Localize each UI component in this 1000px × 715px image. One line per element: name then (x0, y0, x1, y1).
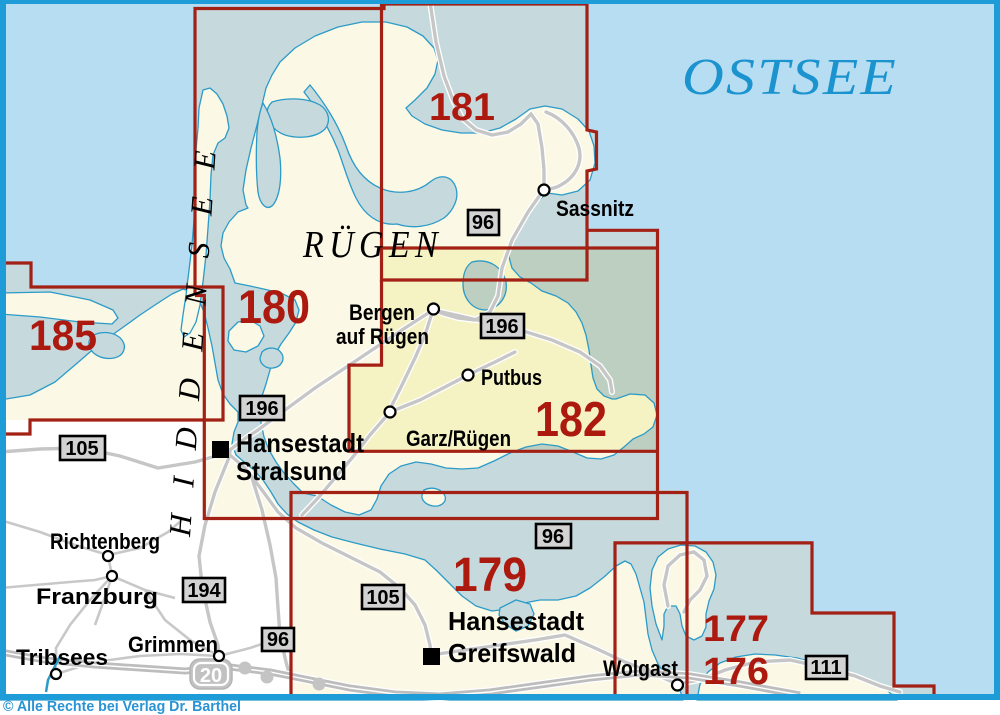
svg-text:Garz/Rügen: Garz/Rügen (406, 426, 511, 451)
svg-text:Grimmen: Grimmen (128, 632, 218, 657)
svg-text:105: 105 (65, 438, 98, 460)
svg-text:194: 194 (187, 580, 221, 602)
svg-text:196: 196 (245, 398, 278, 420)
svg-text:185: 185 (29, 312, 97, 360)
svg-text:© Alle Rechte bei Verlag Dr. B: © Alle Rechte bei Verlag Dr. Barthel (3, 699, 241, 715)
svg-text:96: 96 (542, 526, 564, 548)
svg-text:Putbus: Putbus (481, 365, 542, 390)
svg-text:Sassnitz: Sassnitz (556, 196, 634, 221)
svg-text:96: 96 (267, 629, 289, 651)
svg-text:Stralsund: Stralsund (236, 456, 347, 486)
svg-text:181: 181 (429, 86, 495, 129)
svg-text:182: 182 (535, 393, 607, 447)
svg-text:Bergen: Bergen (349, 300, 415, 325)
svg-text:180: 180 (238, 280, 310, 333)
svg-text:Richtenberg: Richtenberg (50, 529, 160, 554)
svg-text:Hansestadt: Hansestadt (236, 428, 364, 458)
svg-text:Wolgast: Wolgast (603, 656, 679, 681)
svg-text:Hansestadt: Hansestadt (448, 606, 584, 636)
svg-text:179: 179 (453, 549, 527, 602)
svg-text:auf Rügen: auf Rügen (336, 324, 429, 349)
svg-text:105: 105 (366, 587, 399, 609)
svg-text:196: 196 (485, 316, 518, 338)
svg-text:111: 111 (810, 657, 841, 679)
svg-text:96: 96 (472, 212, 494, 234)
svg-text:OSTSEE: OSTSEE (682, 49, 898, 106)
svg-text:RÜGEN: RÜGEN (302, 224, 443, 266)
svg-text:177: 177 (703, 608, 769, 649)
svg-text:20: 20 (200, 665, 222, 687)
svg-text:176: 176 (703, 651, 769, 693)
svg-text:Franzburg: Franzburg (36, 584, 158, 609)
svg-text:Greifswald: Greifswald (448, 638, 576, 668)
svg-text:Tribsees: Tribsees (16, 645, 108, 670)
